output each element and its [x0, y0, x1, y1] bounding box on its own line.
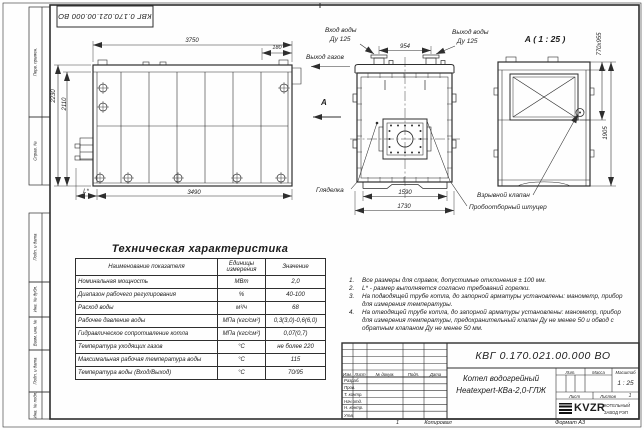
- lit-label: Лит.: [565, 370, 575, 375]
- dim-l-star: L*: [83, 189, 89, 195]
- company-name-line1: КОТЕЛЬНЫЙ: [604, 403, 630, 408]
- format-label: Формат А3: [555, 421, 585, 427]
- spec-cell: 2,0: [266, 276, 326, 289]
- spec-row: Рабочее давление водыМПа (кгс/см²)0,3(3,…: [76, 315, 326, 328]
- note-text: На подводящей трубе котла, до запорной а…: [362, 293, 629, 309]
- spec-header-units: Единицы измерения: [218, 259, 266, 276]
- dim-2110: 2110: [62, 98, 68, 111]
- spec-cell: Диапазон рабочего регулирования: [76, 289, 218, 302]
- sign-row-nachotd: Нач.отд.: [344, 399, 362, 404]
- note-text: L* - размер выполняется согласно требова…: [362, 285, 530, 293]
- spec-cell: Номинальная мощность: [76, 276, 218, 289]
- spec-cell: °С: [218, 367, 266, 380]
- rev-header-data: Дата: [430, 372, 441, 377]
- detail-view-title: А ( 1 : 25 ): [525, 35, 566, 44]
- label-water-outlet: Выход воды: [452, 30, 489, 37]
- sheets-value: 1: [629, 393, 632, 399]
- spec-table: Наименование показателя Единицы измерени…: [75, 258, 326, 380]
- spec-cell: м³/ч: [218, 302, 266, 315]
- label-sight-glass: Гляделка: [316, 188, 344, 195]
- spec-row: Максимальная рабочая температура воды°С1…: [76, 354, 326, 367]
- margin-field-inv-podl: Инв. № подл.: [33, 392, 38, 419]
- spec-cell: не более 220: [266, 341, 326, 354]
- view-direction-letter: А: [321, 99, 327, 107]
- spec-header-name: Наименование показателя: [76, 259, 218, 276]
- drawing-sheet: КВГ 0.170.021.00.000 ВО Перв. примен. Сп…: [0, 0, 644, 430]
- label-water-inlet: Вход воды: [325, 28, 357, 35]
- spec-cell: Температура воды (Вход/Выход): [76, 367, 218, 380]
- spec-cell: 70/95: [266, 367, 326, 380]
- dim-180: 180: [272, 46, 281, 52]
- spec-header-row: Наименование показателя Единицы измерени…: [76, 259, 326, 276]
- label-water-inlet-dn: Ду 125: [330, 37, 351, 44]
- spec-cell: 0,3(3,0)-0,6(6,0): [266, 315, 326, 328]
- spec-cell: МВт: [218, 276, 266, 289]
- note-number: 1.: [349, 277, 362, 285]
- product-name-line1: Котел водогрейный: [463, 374, 539, 383]
- sheets-label: Листов: [600, 394, 616, 399]
- note-text: На отводящей трубе котла, до запорной ар…: [362, 309, 629, 333]
- scale-value: 1 : 25: [617, 380, 633, 387]
- rev-header-dokum: № докум.: [376, 372, 395, 377]
- notes-block: 1.Все размеры для справок, допустимые от…: [349, 277, 629, 333]
- spec-header-value: Значение: [266, 259, 326, 276]
- note-item: 4.На отводящей трубе котла, до запорной …: [349, 309, 629, 333]
- label-water-outlet-dn: Ду 125: [457, 39, 478, 46]
- bottom-sheet-mark: 1: [396, 421, 399, 427]
- spec-cell: °С: [218, 354, 266, 367]
- sign-row-utv: Утв.: [344, 413, 354, 418]
- note-item: 2.L* - размер выполняется согласно требо…: [349, 285, 629, 293]
- sign-row-nkontr: Н. контр.: [344, 405, 363, 410]
- margin-field-podp-data-2: Подп. и дата: [33, 358, 38, 385]
- note-item: 3.На подводящей трубе котла, до запорной…: [349, 293, 629, 309]
- front-view-lines: [350, 55, 460, 198]
- spec-row: Температура воды (Вход/Выход)°С70/95: [76, 367, 326, 380]
- spec-cell: °С: [218, 341, 266, 354]
- dim-1905: 1905: [603, 126, 609, 139]
- spec-cell: 68: [266, 302, 326, 315]
- label-gas-outlet: Выход газов: [306, 55, 344, 62]
- spec-cell: 0,07(0,7): [266, 328, 326, 341]
- note-number: 4.: [349, 309, 362, 333]
- spec-table-block: Техническая характеристика Наименование …: [75, 243, 325, 380]
- dim-3750: 3750: [185, 38, 198, 44]
- spec-row: Номинальная мощностьМВт2,0: [76, 276, 326, 289]
- mass-label: Масса: [592, 370, 605, 375]
- spec-row: Расход водым³/ч68: [76, 302, 326, 315]
- copied-label: Копировал: [424, 421, 451, 427]
- inverted-doc-number: КВГ 0.170.021.00.000 ВО: [58, 12, 152, 21]
- dim-954: 954: [400, 44, 410, 50]
- spec-row: Диапазон рабочего регулирования%40-100: [76, 289, 326, 302]
- spec-cell: МПа (кгс/см²): [218, 315, 266, 328]
- spec-row: Гидравлическое сопротивление котлаМПа (к…: [76, 328, 326, 341]
- spec-cell: Максимальная рабочая температура воды: [76, 354, 218, 367]
- sheet-label: Лист: [569, 394, 580, 399]
- dim-1590: 1590: [398, 190, 411, 196]
- product-name-line2: Heatexpert-КВа-2,0-ГЛЖ: [456, 386, 546, 395]
- kvzr-logo-icon: [559, 403, 572, 414]
- spec-cell: МПа (кгс/см²): [218, 328, 266, 341]
- company-name-line2: ЗАВОД РЭП: [604, 410, 628, 415]
- sign-row-tkontr: Т. контр.: [344, 392, 363, 397]
- kvzr-logo-text: KVZR: [574, 402, 605, 414]
- note-number: 3.: [349, 293, 362, 309]
- inverted-doc-number-stamp: КВГ 0.170.021.00.000 ВО: [57, 6, 153, 27]
- side-view-lines: [75, 60, 301, 186]
- label-explosion-valve: Взрывной клапан: [477, 193, 530, 200]
- spec-cell: %: [218, 289, 266, 302]
- spec-cell: Расход воды: [76, 302, 218, 315]
- dim-2230: 2230: [51, 89, 57, 102]
- detail-view-lines: [494, 57, 594, 186]
- note-number: 2.: [349, 285, 362, 293]
- spec-cell: 40-100: [266, 289, 326, 302]
- margin-field-perv-primen: Перв. примен.: [33, 48, 38, 77]
- sign-row-prov: Пров.: [344, 385, 355, 390]
- spec-cell: 115: [266, 354, 326, 367]
- dim-1730: 1730: [397, 204, 410, 210]
- dim-770x955: 770х955: [597, 32, 603, 55]
- note-text: Все размеры для справок, допустимые откл…: [362, 277, 546, 285]
- spec-table-title: Техническая характеристика: [75, 243, 325, 255]
- spec-cell: Гидравлическое сопротивление котла: [76, 328, 218, 341]
- margin-field-sprav-no: Справ. №: [33, 141, 38, 161]
- margin-field-inv-dubl: Инв. № дубл.: [33, 286, 38, 312]
- margin-field-vzam-inv: Взам. инв. №: [33, 320, 38, 347]
- dim-3490: 3490: [187, 190, 200, 196]
- title-block-doc-number: КВГ 0.170.021.00.000 ВО: [475, 350, 610, 362]
- spec-row: Температура уходящих газов°Сне более 220: [76, 341, 326, 354]
- note-item: 1.Все размеры для справок, допустимые от…: [349, 277, 629, 285]
- sign-row-razrab: Разраб.: [344, 378, 360, 383]
- margin-field-podp-data-1: Подп. и дата: [33, 234, 38, 261]
- rev-header-podp: Подп.: [408, 372, 419, 377]
- spec-cell: Рабочее давление воды: [76, 315, 218, 328]
- spec-cell: Температура уходящих газов: [76, 341, 218, 354]
- rev-header-list: Лист: [354, 372, 365, 377]
- scale-label: Масштаб: [615, 370, 635, 375]
- rev-header-izm: Изм.: [343, 372, 352, 377]
- label-sampling-fitting: Пробоотборный штуцер: [469, 205, 547, 212]
